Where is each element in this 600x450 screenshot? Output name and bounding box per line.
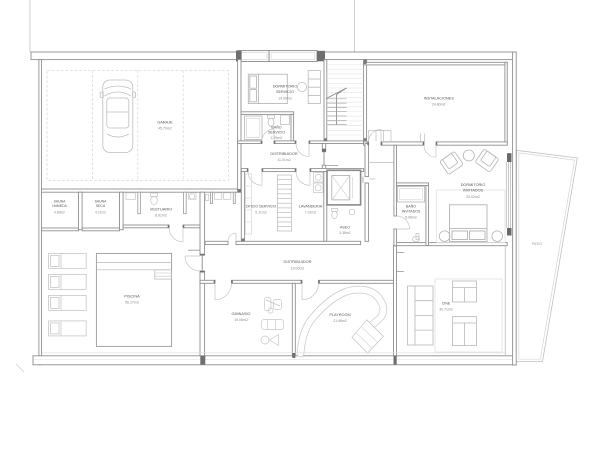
svg-text:4.83m2: 4.83m2	[54, 211, 65, 215]
svg-text:LAVANDERIA: LAVANDERIA	[299, 205, 323, 209]
svg-text:20.02m2: 20.02m2	[466, 195, 480, 199]
svg-text:8.91m2: 8.91m2	[155, 214, 167, 218]
svg-text:PATIO: PATIO	[532, 242, 542, 246]
svg-text:4.21m2: 4.21m2	[95, 211, 106, 215]
svg-text:PISCINA: PISCINA	[124, 294, 140, 299]
svg-text:21.98m2: 21.98m2	[333, 319, 347, 323]
svg-text:INVITADOS: INVITADOS	[402, 210, 421, 214]
svg-text:14.99m2: 14.99m2	[278, 96, 292, 100]
svg-text:11.01m2: 11.01m2	[277, 158, 290, 162]
svg-text:19.00m2: 19.00m2	[291, 267, 305, 271]
svg-text:24.80m2: 24.80m2	[432, 102, 446, 106]
svg-text:DISTRIBUIDOR: DISTRIBUIDOR	[270, 152, 297, 156]
svg-text:4.76m2: 4.76m2	[271, 136, 283, 140]
svg-text:SERVICIO: SERVICIO	[276, 90, 294, 94]
svg-text:BAÑO: BAÑO	[406, 204, 416, 209]
svg-text:PLAYROOM: PLAYROOM	[329, 313, 350, 317]
svg-text:INVITADOS: INVITADOS	[463, 188, 484, 192]
svg-text:30.71m2: 30.71m2	[439, 308, 453, 312]
svg-text:5.11m2: 5.11m2	[255, 211, 266, 215]
svg-text:DORMITORIO: DORMITORIO	[461, 183, 486, 187]
svg-text:7.01m2: 7.01m2	[305, 211, 317, 215]
svg-text:CINE: CINE	[442, 302, 451, 306]
svg-text:SECA: SECA	[96, 204, 106, 208]
svg-text:VESTUARIO: VESTUARIO	[150, 207, 172, 212]
svg-text:HUMEDA: HUMEDA	[52, 204, 67, 208]
svg-text:OFICIO SERVICIO: OFICIO SERVICIO	[246, 205, 277, 209]
svg-text:19.06m2: 19.06m2	[234, 318, 248, 322]
svg-text:SAUNA: SAUNA	[54, 200, 66, 204]
svg-text:DISTRIBUIDOR: DISTRIBUIDOR	[284, 259, 312, 264]
svg-text:DORMITORIO: DORMITORIO	[273, 85, 298, 89]
svg-text:5.08m2: 5.08m2	[405, 216, 417, 220]
svg-text:3.38m2: 3.38m2	[339, 231, 351, 235]
svg-text:SAUNA: SAUNA	[95, 200, 107, 204]
svg-text:56.27m2: 56.27m2	[125, 301, 139, 305]
svg-text:45.70m2: 45.70m2	[158, 127, 172, 131]
svg-text:GIMNASIO: GIMNASIO	[232, 312, 251, 316]
svg-text:GARAJE: GARAJE	[157, 120, 173, 125]
svg-text:INSTALACIONES: INSTALACIONES	[424, 97, 455, 101]
svg-text:SERVICIO: SERVICIO	[268, 130, 285, 134]
svg-text:ASEO: ASEO	[340, 226, 350, 230]
